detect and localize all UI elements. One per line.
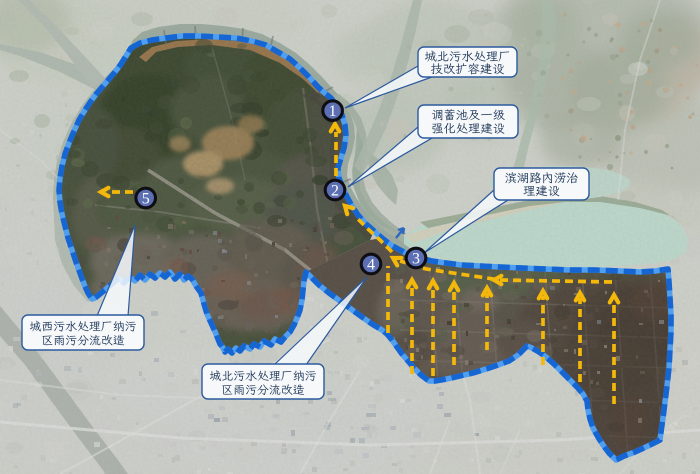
svg-text:4: 4 [367, 257, 375, 274]
svg-text:5: 5 [142, 191, 150, 208]
svg-text:1: 1 [329, 103, 337, 120]
svg-text:2: 2 [331, 183, 339, 200]
svg-text:3: 3 [412, 251, 420, 268]
